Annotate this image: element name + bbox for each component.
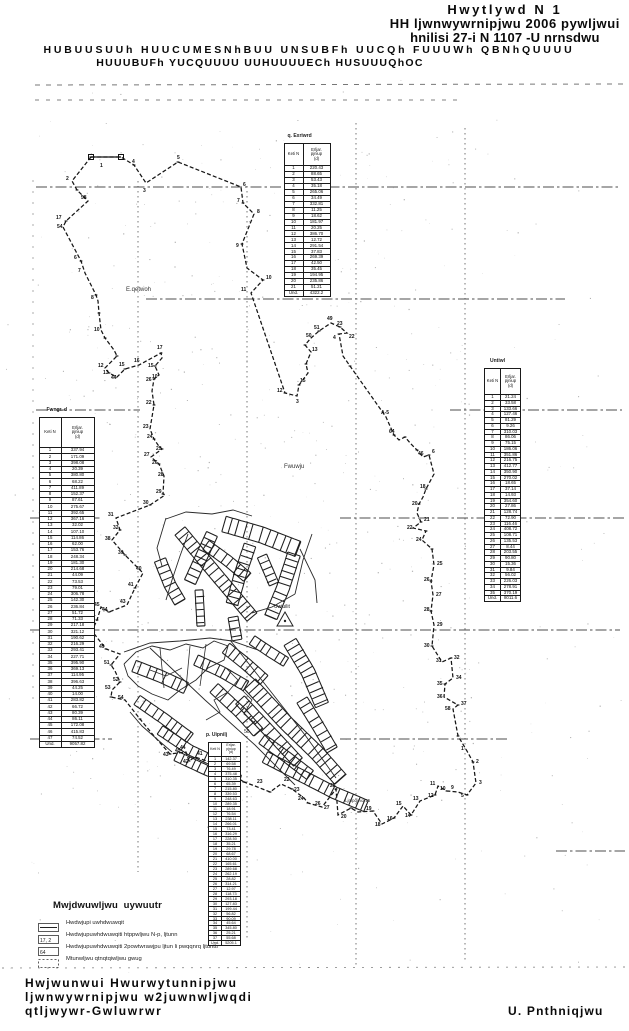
svg-text:15: 15: [148, 363, 154, 369]
svg-text:6: 6: [432, 449, 435, 455]
svg-text:3: 3: [296, 399, 299, 405]
svg-text:Fwuwju: Fwuwju: [284, 464, 304, 470]
svg-text:32: 32: [113, 525, 119, 531]
svg-text:29: 29: [156, 489, 162, 495]
svg-text:49: 49: [99, 644, 105, 650]
svg-text:22: 22: [407, 525, 413, 531]
svg-text:30: 30: [424, 643, 430, 649]
svg-text:27: 27: [144, 452, 150, 458]
svg-text:23: 23: [294, 787, 300, 793]
svg-text:2: 2: [476, 759, 479, 765]
svg-text:4: 4: [132, 159, 135, 165]
svg-text:6: 6: [243, 182, 246, 188]
svg-text:26: 26: [152, 460, 158, 466]
svg-text:46: 46: [418, 451, 424, 457]
svg-text:10: 10: [266, 275, 272, 281]
svg-text:19: 19: [366, 806, 372, 812]
svg-text:11: 11: [241, 287, 247, 293]
svg-text:1: 1: [100, 163, 103, 169]
svg-text:A-5: A-5: [381, 410, 389, 416]
svg-text:23: 23: [257, 779, 263, 785]
svg-text:16: 16: [387, 816, 393, 822]
svg-text:45: 45: [94, 602, 100, 608]
svg-text:20: 20: [412, 501, 418, 507]
svg-text:50: 50: [244, 729, 250, 735]
svg-text:14: 14: [405, 813, 411, 819]
svg-text:58: 58: [81, 195, 87, 201]
svg-text:51: 51: [104, 660, 110, 666]
svg-text:21: 21: [424, 517, 430, 523]
svg-text:36: 36: [437, 694, 443, 700]
svg-text:25: 25: [437, 561, 443, 567]
svg-text:17: 17: [157, 345, 163, 351]
svg-text:26: 26: [424, 577, 430, 583]
svg-text:52: 52: [113, 677, 119, 683]
svg-text:10: 10: [440, 786, 446, 792]
svg-text:53: 53: [105, 685, 111, 691]
svg-text:24: 24: [298, 796, 304, 802]
svg-text:18: 18: [420, 484, 426, 490]
svg-text:3: 3: [143, 188, 146, 194]
svg-text:40: 40: [136, 566, 142, 572]
svg-text:Ljnipqjniq 15: Ljnipqjniq 15: [345, 798, 371, 803]
svg-text:11: 11: [430, 781, 436, 787]
svg-text:32: 32: [454, 655, 460, 661]
svg-text:49: 49: [327, 316, 333, 322]
svg-text:E.qetwoh: E.qetwoh: [126, 287, 151, 293]
svg-text:13: 13: [103, 370, 109, 376]
svg-text:43: 43: [120, 599, 126, 605]
svg-text:24: 24: [416, 537, 422, 543]
svg-text:5: 5: [461, 793, 464, 799]
svg-text:34: 34: [456, 675, 462, 681]
svg-text:22: 22: [284, 777, 290, 783]
svg-text:3: 3: [479, 780, 482, 786]
svg-text:8: 8: [257, 209, 260, 215]
svg-text:13: 13: [413, 796, 419, 802]
svg-text:12: 12: [428, 793, 434, 799]
svg-text:41: 41: [128, 582, 134, 588]
svg-text:27: 27: [324, 805, 330, 811]
svg-text:25: 25: [156, 446, 162, 452]
svg-text:18: 18: [375, 822, 381, 828]
svg-text:29: 29: [437, 622, 443, 628]
svg-text:12: 12: [98, 363, 104, 369]
svg-text:30: 30: [143, 500, 149, 506]
svg-text:17: 17: [56, 215, 62, 221]
svg-text:37: 37: [461, 701, 467, 707]
svg-text:58: 58: [445, 706, 451, 712]
svg-text:26: 26: [146, 377, 152, 383]
svg-text:15: 15: [396, 801, 402, 807]
svg-text:7: 7: [237, 198, 240, 204]
svg-text:28: 28: [158, 472, 164, 478]
svg-text:24: 24: [147, 434, 153, 440]
svg-text:7: 7: [78, 268, 81, 274]
svg-text:Uwjuilit: Uwjuilit: [274, 604, 290, 610]
svg-text:1: 1: [461, 746, 464, 752]
svg-text:23: 23: [143, 424, 149, 430]
svg-text:44: 44: [111, 375, 117, 381]
svg-text:15: 15: [119, 362, 125, 368]
svg-text:51: 51: [314, 325, 320, 331]
svg-text:43: 43: [163, 752, 169, 758]
svg-text:9: 9: [236, 243, 239, 249]
svg-text:50: 50: [306, 333, 312, 339]
svg-text:15: 15: [300, 378, 306, 384]
svg-text:54: 54: [118, 695, 124, 701]
svg-text:54: 54: [57, 224, 63, 230]
svg-text:4: 4: [333, 335, 336, 341]
svg-text:31: 31: [108, 512, 114, 518]
svg-text:39: 39: [118, 550, 124, 556]
svg-text:22: 22: [146, 400, 152, 406]
svg-text:12: 12: [277, 388, 283, 394]
svg-text:5: 5: [177, 155, 180, 161]
svg-text:27: 27: [436, 592, 442, 598]
svg-text:9: 9: [451, 785, 454, 791]
svg-text:44: 44: [102, 607, 108, 613]
svg-text:31: 31: [436, 658, 442, 664]
svg-text:2: 2: [66, 176, 69, 182]
svg-text:38: 38: [105, 536, 111, 542]
svg-text:10: 10: [94, 327, 100, 333]
svg-text:35: 35: [437, 681, 443, 687]
svg-text:10: 10: [152, 374, 158, 380]
svg-text:22: 22: [349, 334, 355, 340]
svg-text:28: 28: [424, 607, 430, 613]
svg-text:13: 13: [312, 347, 318, 353]
svg-text:26: 26: [315, 801, 321, 807]
svg-text:6: 6: [74, 255, 77, 261]
svg-text:8: 8: [91, 295, 94, 301]
svg-text:20: 20: [341, 814, 347, 820]
svg-text:64: 64: [389, 429, 395, 435]
svg-text:16: 16: [134, 358, 140, 364]
svg-text:23: 23: [337, 321, 343, 327]
